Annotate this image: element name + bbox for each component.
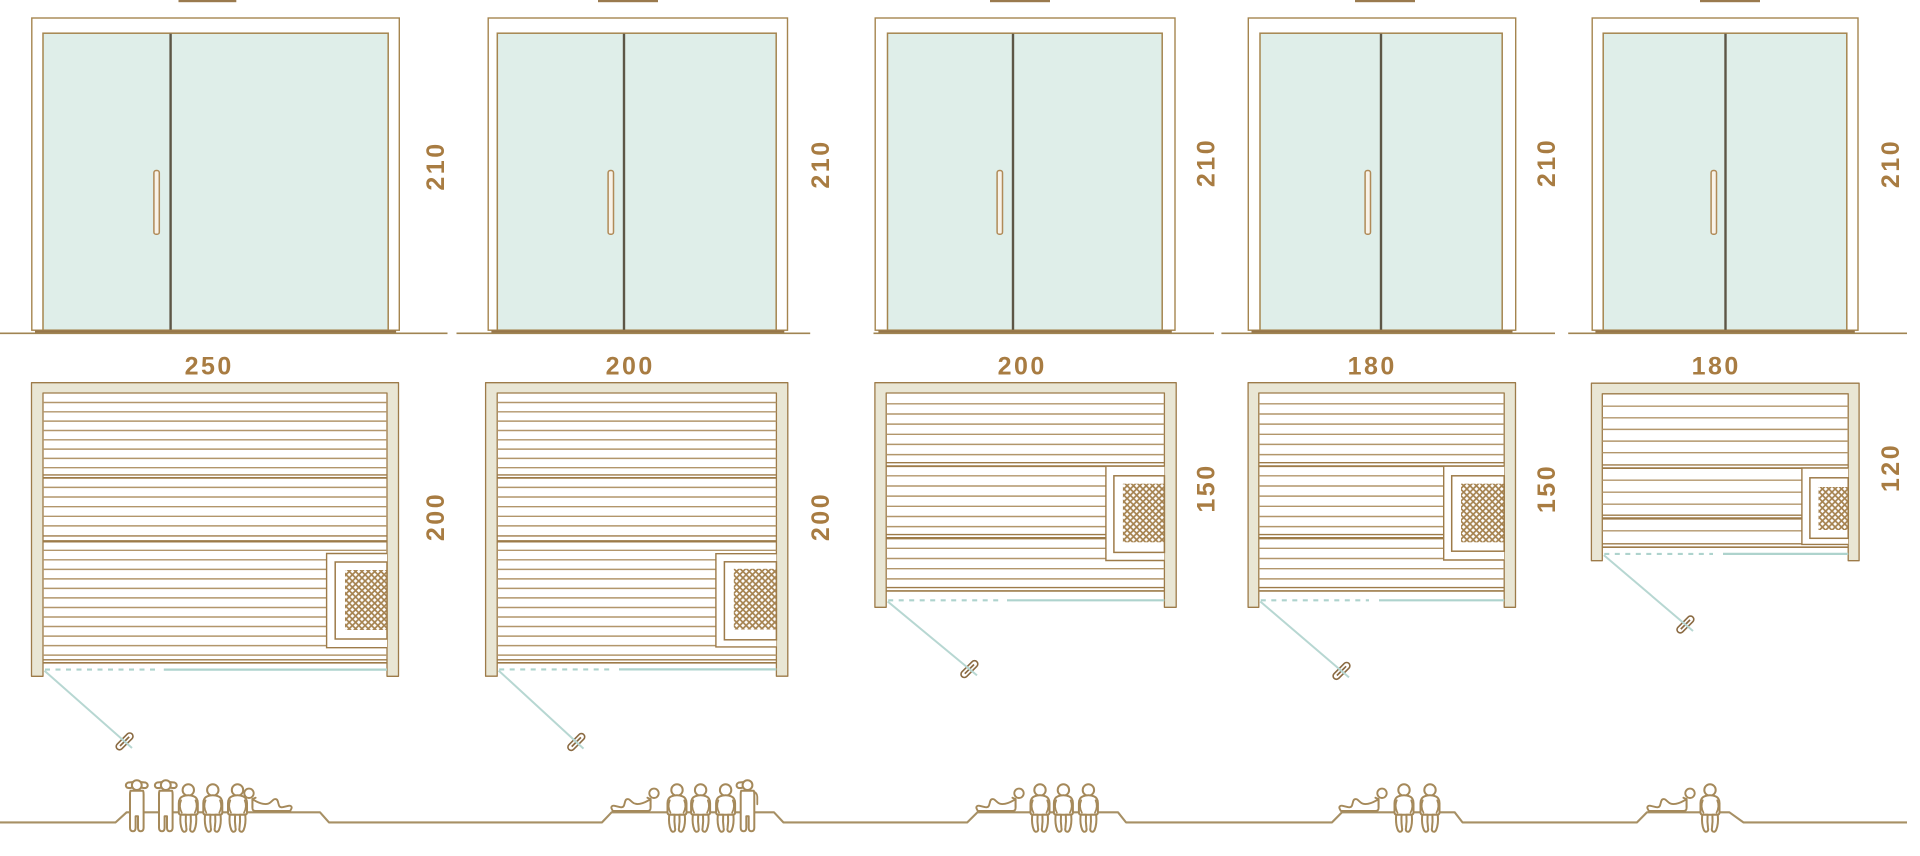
svg-text:180: 180 [1348,353,1397,381]
svg-text:150: 150 [1193,463,1221,512]
svg-text:210: 210 [1193,138,1221,187]
svg-text:250: 250 [185,353,234,381]
svg-text:180: 180 [1692,353,1741,381]
svg-text:210: 210 [1533,138,1561,187]
svg-text:210: 210 [1877,139,1905,188]
svg-text:200: 200 [606,353,655,381]
svg-text:200: 200 [998,353,1047,381]
svg-text:210: 210 [807,139,835,188]
svg-text:210: 210 [422,141,450,190]
svg-text:120: 120 [1877,443,1905,492]
svg-text:150: 150 [1533,464,1561,513]
svg-text:200: 200 [422,492,450,541]
svg-text:200: 200 [807,492,835,541]
